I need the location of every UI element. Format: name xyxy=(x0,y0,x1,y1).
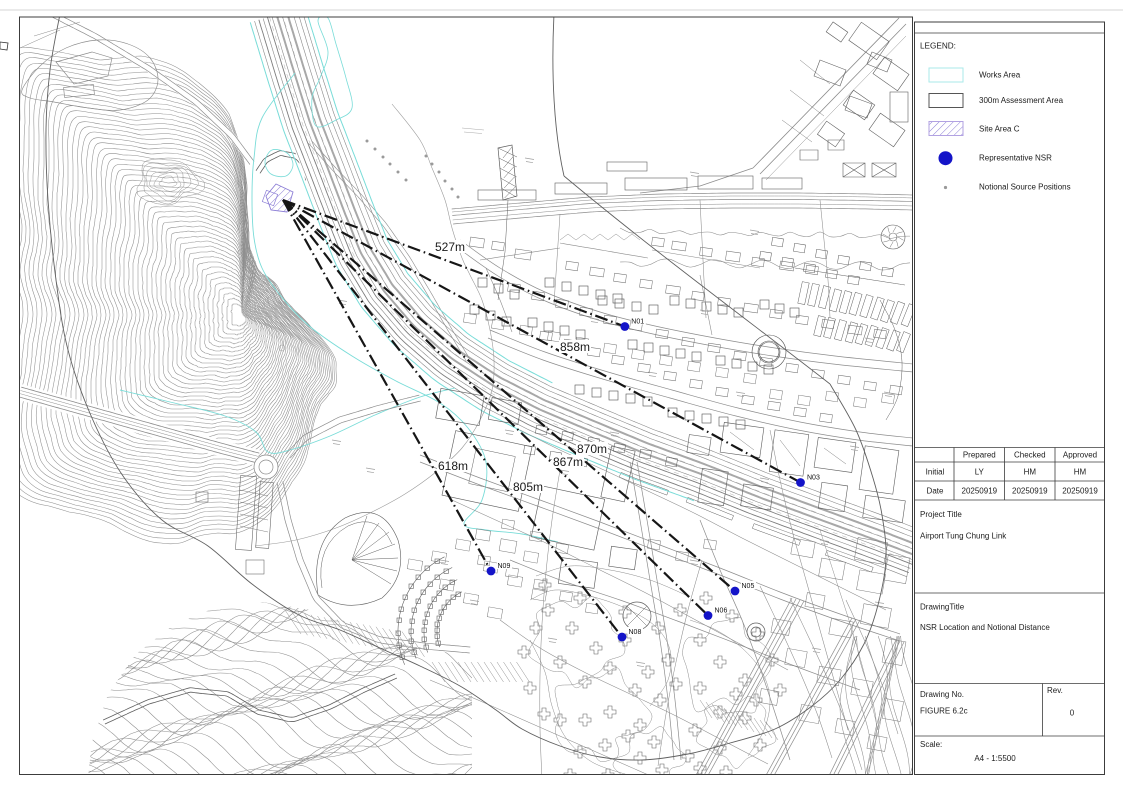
svg-text:N09: N09 xyxy=(498,563,511,570)
svg-text:0: 0 xyxy=(1070,709,1075,718)
svg-text:Notional Source Positions: Notional Source Positions xyxy=(979,183,1071,192)
svg-text:Drawing No.: Drawing No. xyxy=(920,690,964,699)
svg-text:HM: HM xyxy=(1024,468,1037,477)
svg-text:870m: 870m xyxy=(577,442,607,456)
svg-text:Project Title: Project Title xyxy=(920,510,962,519)
svg-text:NSR Location and Notional Dist: NSR Location and Notional Distance xyxy=(920,623,1050,632)
svg-text:618m: 618m xyxy=(438,459,468,473)
svg-text:N01: N01 xyxy=(631,318,644,325)
svg-text:Works Area: Works Area xyxy=(979,71,1021,80)
svg-text:867m: 867m xyxy=(553,455,583,469)
svg-text:N05: N05 xyxy=(742,583,755,590)
svg-text:HM: HM xyxy=(1074,468,1087,477)
svg-text:Airport Tung Chung Link: Airport Tung Chung Link xyxy=(920,532,1007,541)
svg-text:Checked: Checked xyxy=(1014,451,1046,460)
svg-text:N06: N06 xyxy=(715,607,728,614)
svg-text:Approved: Approved xyxy=(1063,451,1097,460)
svg-text:20250919: 20250919 xyxy=(1012,487,1048,496)
svg-text:300m Assessment Area: 300m Assessment Area xyxy=(979,96,1064,105)
svg-text:527m: 527m xyxy=(435,240,465,254)
svg-text:20250919: 20250919 xyxy=(1062,487,1098,496)
svg-text:858m: 858m xyxy=(560,340,590,354)
svg-text:Initial: Initial xyxy=(926,468,945,477)
svg-text:N08: N08 xyxy=(629,629,642,636)
svg-text:LY: LY xyxy=(975,468,985,477)
svg-text:DrawingTitle: DrawingTitle xyxy=(920,603,965,612)
svg-text:Prepared: Prepared xyxy=(963,451,996,460)
svg-text:Rev.: Rev. xyxy=(1047,686,1063,695)
svg-text:805m: 805m xyxy=(513,480,543,494)
svg-text:N03: N03 xyxy=(807,474,820,481)
svg-text:Scale:: Scale: xyxy=(920,740,942,749)
svg-text:Representative NSR: Representative NSR xyxy=(979,154,1052,163)
svg-text:20250919: 20250919 xyxy=(962,487,998,496)
svg-text:Date: Date xyxy=(927,487,944,496)
svg-text:FIGURE 6.2c: FIGURE 6.2c xyxy=(920,707,968,716)
svg-text:A4 - 1:5500: A4 - 1:5500 xyxy=(974,754,1016,763)
svg-text:Site Area C: Site Area C xyxy=(979,125,1020,134)
svg-text:LEGEND:: LEGEND: xyxy=(920,42,956,51)
